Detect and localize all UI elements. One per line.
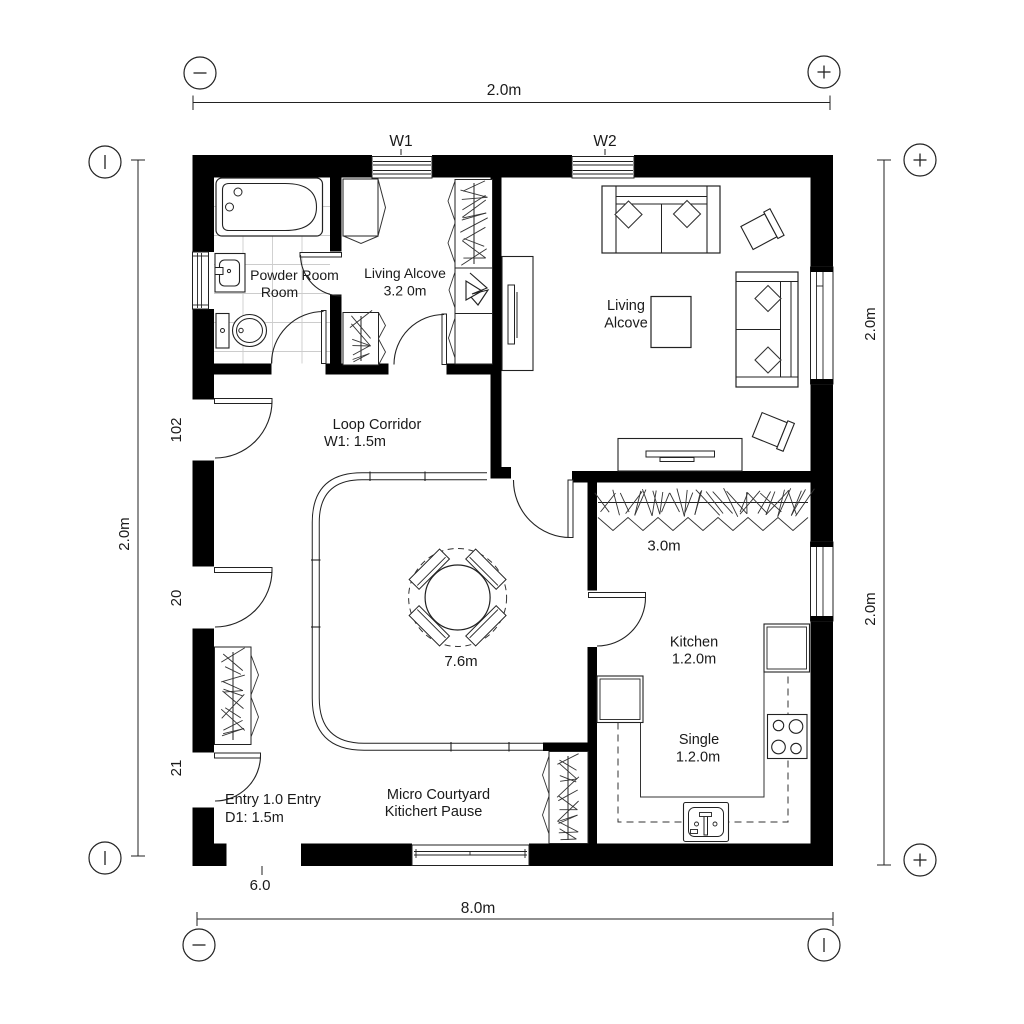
svg-text:20: 20 [168, 590, 185, 607]
svg-text:1.2.0m: 1.2.0m [672, 652, 716, 668]
svg-text:Entry 1.0 Entry: Entry 1.0 Entry [225, 792, 322, 808]
svg-text:6.0: 6.0 [250, 877, 271, 894]
svg-text:Kitchen: Kitchen [670, 635, 718, 651]
svg-text:Single: Single [679, 732, 719, 748]
svg-text:2.0m: 2.0m [116, 517, 133, 550]
svg-text:Loop Corridor: Loop Corridor [333, 417, 422, 433]
svg-text:102: 102 [168, 417, 185, 442]
svg-text:W2: W2 [593, 133, 616, 150]
svg-text:3.2 0m: 3.2 0m [384, 283, 427, 299]
svg-text:3.0m: 3.0m [647, 538, 680, 555]
svg-text:7.6m: 7.6m [444, 653, 477, 670]
svg-text:2.0m: 2.0m [487, 82, 521, 99]
svg-text:Alcove: Alcove [604, 316, 648, 332]
svg-text:D1: 1.5m: D1: 1.5m [225, 810, 284, 826]
svg-text:2.0m: 2.0m [862, 592, 879, 625]
svg-text:Micro Courtyard: Micro Courtyard [387, 787, 490, 803]
svg-text:Room: Room [261, 284, 298, 300]
svg-text:Powder Room: Powder Room [250, 267, 339, 283]
svg-text:8.0m: 8.0m [461, 900, 495, 917]
svg-text:Living Alcove: Living Alcove [364, 265, 446, 281]
svg-text:Living: Living [607, 298, 645, 314]
svg-text:W1: W1 [389, 133, 412, 150]
svg-text:2.0m: 2.0m [862, 307, 879, 340]
svg-text:1.2.0m: 1.2.0m [676, 750, 720, 766]
svg-text:21: 21 [168, 760, 185, 777]
svg-text:Kitichert Pause: Kitichert Pause [385, 804, 483, 820]
svg-text:W1: 1.5m: W1: 1.5m [324, 434, 386, 450]
